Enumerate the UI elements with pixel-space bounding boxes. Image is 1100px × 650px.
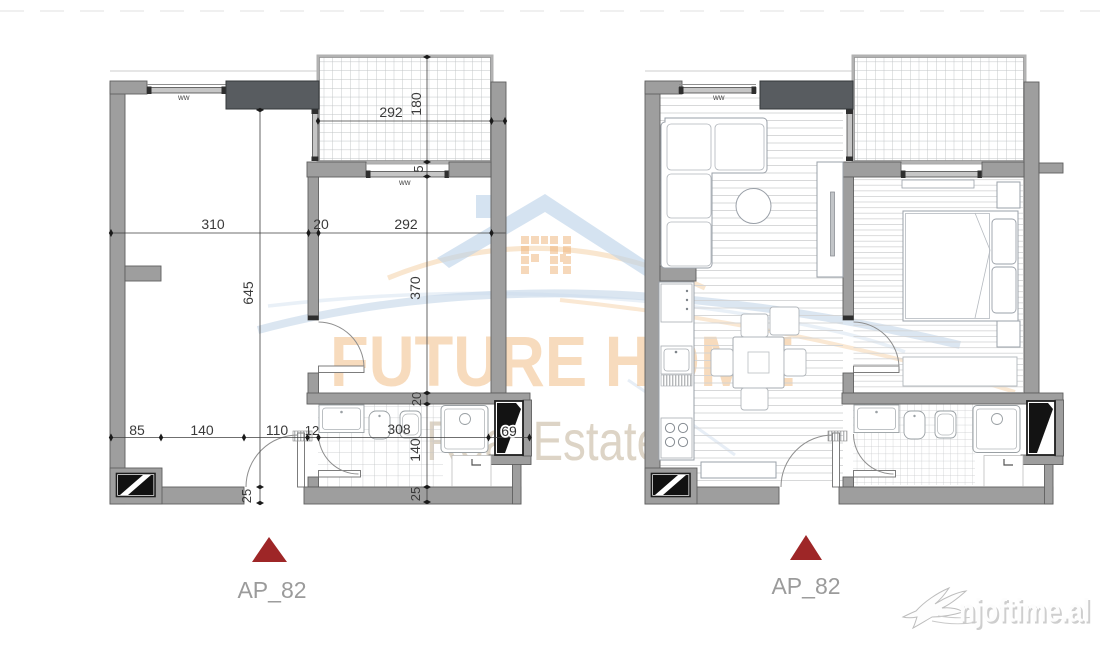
svg-text:310: 310 <box>201 216 225 232</box>
svg-text:AP_82: AP_82 <box>237 577 306 603</box>
svg-text:645: 645 <box>240 281 256 305</box>
svg-text:292: 292 <box>394 216 418 232</box>
svg-text:180: 180 <box>408 92 424 116</box>
svg-text:308: 308 <box>387 421 411 437</box>
svg-text:85: 85 <box>129 422 145 438</box>
svg-text:njoftime.al: njoftime.al <box>959 593 1090 629</box>
svg-text:ww: ww <box>398 178 411 187</box>
svg-text:20: 20 <box>409 392 424 406</box>
svg-text:25: 25 <box>239 489 254 503</box>
svg-text:20: 20 <box>313 216 329 232</box>
svg-text:ww: ww <box>712 93 725 102</box>
svg-text:12: 12 <box>305 423 319 438</box>
svg-text:ww: ww <box>177 93 190 102</box>
svg-text:AP_82: AP_82 <box>771 573 840 599</box>
svg-text:25: 25 <box>408 487 423 501</box>
svg-text:140: 140 <box>407 438 423 462</box>
svg-text:5: 5 <box>411 165 426 172</box>
svg-text:140: 140 <box>190 422 214 438</box>
svg-text:110: 110 <box>266 422 289 438</box>
svg-text:69: 69 <box>501 423 517 439</box>
svg-text:370: 370 <box>407 276 423 300</box>
svg-text:292: 292 <box>379 104 403 120</box>
